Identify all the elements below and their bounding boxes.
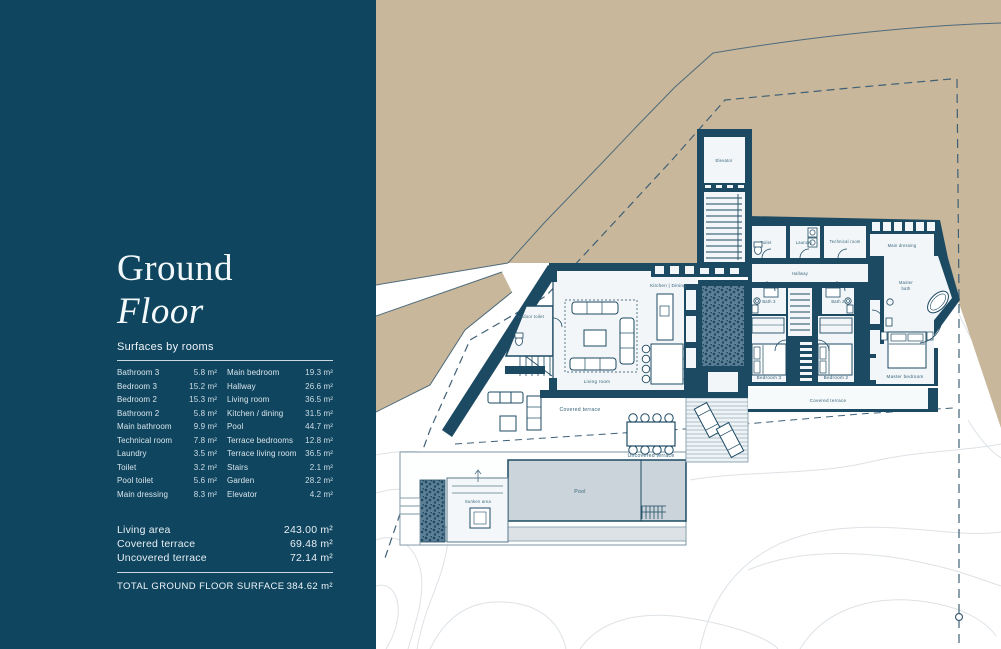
room-area: 2.1 m² — [310, 463, 333, 472]
room-name: Pool — [227, 422, 243, 431]
sunken-area — [447, 470, 508, 542]
room-name: Bedroom 3 — [117, 382, 157, 391]
room-area: 36.5 m² — [305, 449, 333, 458]
room-name: Terrace living room — [227, 449, 296, 458]
summary-area: 69.48 m² — [290, 538, 333, 552]
pool-toilet-room — [708, 372, 738, 392]
table-row: Pool toilet5.6 m² — [117, 476, 217, 490]
fire-table — [470, 508, 490, 528]
swimming-pool — [508, 460, 686, 521]
table-row: Bathroom 35.8 m² — [117, 368, 217, 382]
hallway — [752, 264, 868, 282]
page-title-line2: Floor — [117, 291, 233, 334]
bed — [818, 344, 852, 375]
room-area: 19.3 m² — [305, 368, 333, 377]
rooms-column-right: Main bedroom19.3 m² Hallway26.6 m² Livin… — [227, 368, 333, 503]
table-row: Main bathroom9.9 m² — [117, 422, 217, 436]
room-area: 31.5 m² — [305, 409, 333, 418]
room-name: Laundry — [117, 449, 147, 458]
coffee-table — [584, 330, 606, 346]
room-name: Pool toilet — [117, 476, 153, 485]
table-row: Garden28.2 m² — [227, 476, 333, 490]
label-uncovered-terrace: Uncovered terrace — [628, 453, 675, 459]
label-bedroom-3: Bedroom 3 — [757, 375, 782, 380]
table-row: Toilet3.2 m² — [117, 463, 217, 477]
room-name: Technical room — [117, 436, 172, 445]
label-main-dressing: Main dressing — [888, 243, 917, 248]
label-kitchen-dining: Kitchen | Dining — [650, 283, 686, 288]
label-bedroom-2: Bedroom 2 — [824, 375, 849, 380]
label-living-room: Living room — [584, 379, 611, 384]
summary-name: Living area — [117, 524, 171, 538]
table-row: Living room36.5 m² — [227, 395, 333, 409]
label-hallway: Hallway — [792, 271, 809, 276]
label-master-bath-2: bath — [902, 286, 911, 291]
room-name: Garden — [227, 476, 254, 485]
total-area: 384.62 m² — [287, 581, 333, 592]
room-name: Kitchen / dining — [227, 409, 283, 418]
room-area: 5.6 m² — [194, 476, 217, 485]
room-area: 15.2 m² — [189, 382, 217, 391]
surfaces-heading: Surfaces by rooms — [117, 341, 333, 361]
kitchen-island — [657, 294, 673, 340]
table-row: Pool44.7 m² — [227, 422, 333, 436]
room-name: Main bedroom — [227, 368, 279, 377]
room-area: 12.8 m² — [305, 436, 333, 445]
rooms-column-left: Bathroom 35.8 m² Bedroom 315.2 m² Bedroo… — [117, 368, 217, 503]
room-name: Bathroom 3 — [117, 368, 159, 377]
table-row: Terrace bedrooms12.8 m² — [227, 436, 333, 450]
info-panel: Ground Floor Surfaces by rooms Bathroom … — [0, 0, 376, 649]
sofa — [572, 302, 618, 314]
room-area: 3.5 m² — [194, 449, 217, 458]
room-name: Terrace bedrooms — [227, 436, 293, 445]
room-name: Hallway — [227, 382, 256, 391]
table-row: Bedroom 315.2 m² — [117, 382, 217, 396]
floor-plan-svg: Elevator Kitchen | Dining Living room Ou… — [376, 0, 1001, 649]
planting-strip — [420, 480, 445, 542]
table-row: Bedroom 215.3 m² — [117, 395, 217, 409]
table-row: Kitchen / dining31.5 m² — [227, 409, 333, 423]
label-master-bedroom: Master bedroom — [887, 374, 924, 379]
summary-area: 243.00 m² — [284, 524, 333, 538]
surface-summary: Living area243.00 m² Covered terrace69.4… — [117, 524, 333, 566]
label-sunken-area: Sunken area — [465, 499, 491, 504]
dining-table — [651, 344, 683, 384]
page-title-line1: Ground — [117, 248, 233, 289]
bedroom-terrace-deck — [686, 390, 748, 462]
room-name: Toilet — [117, 463, 136, 472]
room-area: 15.3 m² — [189, 395, 217, 404]
surfaces-table: Surfaces by rooms Bathroom 35.8 m² Bedro… — [117, 341, 333, 503]
room-area: 5.8 m² — [194, 409, 217, 418]
label-master-bath-1: Master — [899, 280, 913, 285]
label-laundry: Laundry — [796, 240, 813, 245]
floor-plan-panel: Elevator Kitchen | Dining Living room Ou… — [376, 0, 1001, 649]
summary-row: Covered terrace69.48 m² — [117, 538, 333, 552]
summary-row: Living area243.00 m² — [117, 524, 333, 538]
room-area: 9.9 m² — [194, 422, 217, 431]
label-covered-terrace-right: Covered terrace — [810, 398, 847, 403]
stair-tower — [697, 129, 752, 268]
room-area: 7.8 m² — [194, 436, 217, 445]
room-area: 5.8 m² — [194, 368, 217, 377]
total-label: TOTAL GROUND FLOOR SURFACE — [117, 581, 285, 592]
room-area: 8.3 m² — [194, 490, 217, 499]
table-row: Terrace living room36.5 m² — [227, 449, 333, 463]
table-row: Stairs2.1 m² — [227, 463, 333, 477]
table-row: Laundry3.5 m² — [117, 449, 217, 463]
room-area: 3.2 m² — [194, 463, 217, 472]
garden-courtyard — [684, 280, 748, 398]
room-name: Main bathroom — [117, 422, 172, 431]
summary-area: 72.14 m² — [290, 552, 333, 566]
chaise — [620, 318, 634, 364]
room-name: Stairs — [227, 463, 248, 472]
label-technical-room: Technical room — [829, 239, 860, 244]
room-name: Main dressing — [117, 490, 168, 499]
label-toilet: Toilet — [760, 240, 772, 245]
room-area: 4.2 m² — [310, 490, 333, 499]
table-row: Technical room7.8 m² — [117, 436, 217, 450]
label-bath-3: Bath 3 — [762, 299, 776, 304]
table-row: Main bedroom19.3 m² — [227, 368, 333, 382]
table-row: Elevator4.2 m² — [227, 490, 333, 504]
page-title: Ground Floor — [117, 248, 233, 334]
room-name: Bedroom 2 — [117, 395, 157, 404]
room-area: 36.5 m² — [305, 395, 333, 404]
table-row: Main dressing8.3 m² — [117, 490, 217, 504]
sofa — [570, 358, 616, 370]
master-bed — [881, 332, 933, 368]
boundary-marker — [956, 614, 963, 621]
room-name: Bathroom 2 — [117, 409, 159, 418]
summary-row: Uncovered terrace72.14 m² — [117, 552, 333, 566]
label-outdoor-toilet: Outdoor toilet — [516, 314, 545, 319]
room-area: 44.7 m² — [305, 422, 333, 431]
table-row: Hallway26.6 m² — [227, 382, 333, 396]
bed — [752, 344, 786, 375]
label-bath-2: Bath 2 — [831, 299, 845, 304]
label-pool: Pool — [574, 489, 585, 495]
summary-name: Uncovered terrace — [117, 552, 207, 566]
table-row: Bathroom 25.8 m² — [117, 409, 217, 423]
room-name: Elevator — [227, 490, 257, 499]
label-elevator: Elevator — [715, 158, 732, 163]
room-area: 28.2 m² — [305, 476, 333, 485]
summary-name: Covered terrace — [117, 538, 195, 552]
room-area: 26.6 m² — [305, 382, 333, 391]
room-name: Living room — [227, 395, 269, 404]
total-surface-row: TOTAL GROUND FLOOR SURFACE 384.62 m² — [117, 572, 333, 592]
side-steps — [400, 498, 420, 545]
label-covered-terrace-left: Covered terrace — [560, 407, 601, 413]
